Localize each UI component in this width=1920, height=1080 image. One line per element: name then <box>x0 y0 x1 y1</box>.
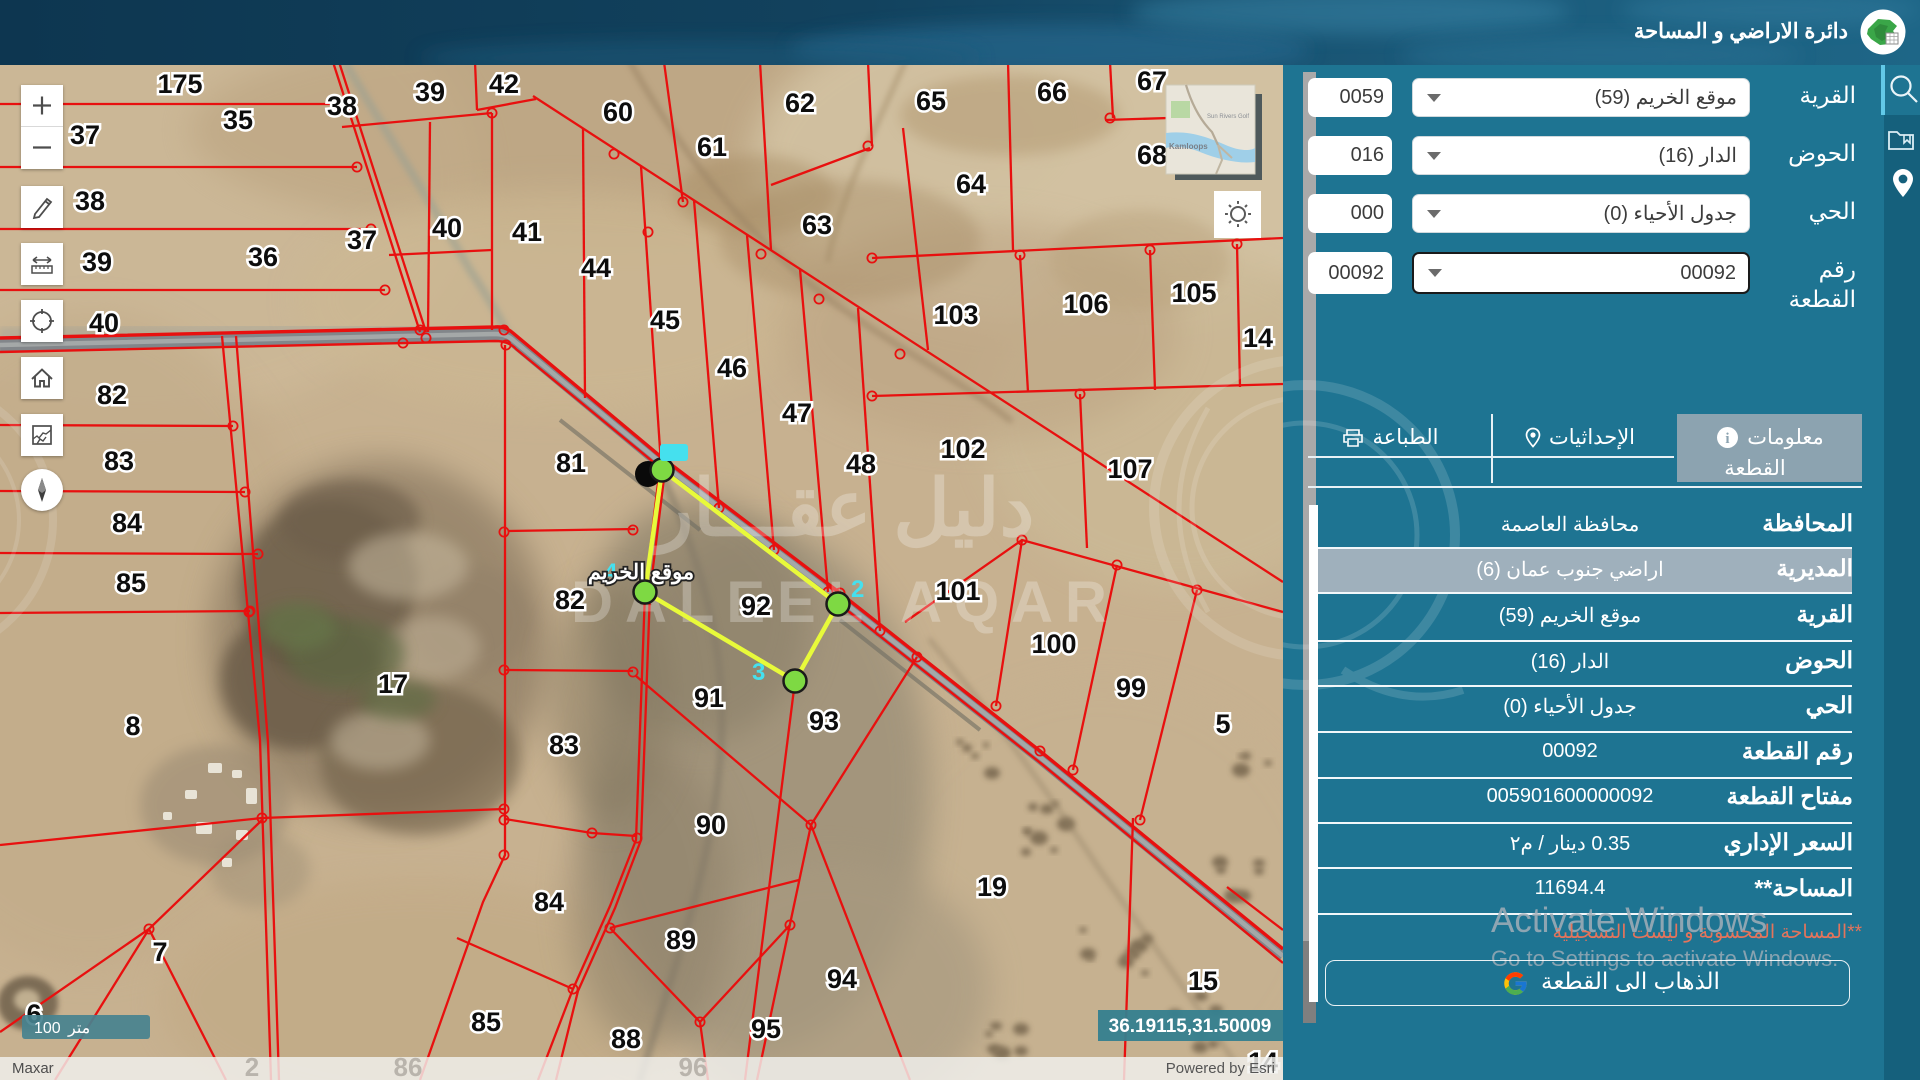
svg-text:175: 175 <box>157 69 202 99</box>
svg-text:100: 100 <box>1031 629 1076 659</box>
svg-text:63: 63 <box>802 210 832 240</box>
svg-text:42: 42 <box>489 69 519 99</box>
svg-text:45: 45 <box>650 305 680 335</box>
svg-text:3: 3 <box>752 659 765 686</box>
svg-text:44: 44 <box>581 253 611 283</box>
svg-text:40: 40 <box>432 213 462 243</box>
svg-text:48: 48 <box>846 449 876 479</box>
svg-text:40: 40 <box>89 308 119 338</box>
svg-text:2: 2 <box>245 1052 259 1080</box>
svg-text:68: 68 <box>1137 140 1167 170</box>
svg-text:46: 46 <box>717 353 747 383</box>
svg-text:94: 94 <box>827 964 857 994</box>
svg-text:100: 100 <box>34 1020 61 1037</box>
svg-text:37: 37 <box>70 120 100 150</box>
svg-text:93: 93 <box>809 706 839 736</box>
svg-text:84: 84 <box>534 887 564 917</box>
svg-text:99: 99 <box>1116 673 1146 703</box>
svg-text:Powered by Esri: Powered by Esri <box>1166 1060 1275 1077</box>
svg-text:67: 67 <box>1137 66 1167 96</box>
svg-text:39: 39 <box>415 77 445 107</box>
svg-text:17: 17 <box>378 669 408 699</box>
svg-text:84: 84 <box>112 508 142 538</box>
svg-text:35: 35 <box>223 105 253 135</box>
svg-text:39: 39 <box>82 247 112 277</box>
svg-text:64: 64 <box>956 169 986 199</box>
svg-text:7: 7 <box>152 937 167 967</box>
svg-text:101: 101 <box>935 576 980 606</box>
svg-text:82: 82 <box>97 380 127 410</box>
svg-text:i: i <box>1726 431 1730 447</box>
svg-text:5: 5 <box>1215 709 1230 739</box>
svg-text:90: 90 <box>696 810 726 840</box>
svg-text:88: 88 <box>611 1024 641 1054</box>
svg-text:موقع الخريم: موقع الخريم <box>588 561 694 585</box>
svg-text:Kamloops: Kamloops <box>1169 142 1208 151</box>
svg-text:81: 81 <box>556 448 586 478</box>
svg-text:36: 36 <box>248 242 278 272</box>
svg-text:102: 102 <box>940 434 985 464</box>
svg-text:60: 60 <box>603 97 633 127</box>
svg-text:15: 15 <box>1188 966 1218 996</box>
svg-text:92: 92 <box>741 591 771 621</box>
svg-text:62: 62 <box>785 88 815 118</box>
svg-text:61: 61 <box>697 132 727 162</box>
svg-text:91: 91 <box>694 683 724 713</box>
svg-text:89: 89 <box>666 925 696 955</box>
svg-text:2: 2 <box>851 576 864 603</box>
svg-text:82: 82 <box>555 585 585 615</box>
svg-text:83: 83 <box>549 730 579 760</box>
svg-text:107: 107 <box>1107 454 1152 484</box>
svg-text:65: 65 <box>916 86 946 116</box>
svg-text:19: 19 <box>977 872 1007 902</box>
svg-text:دليل عقـــار: دليل عقـــار <box>651 464 1035 556</box>
svg-text:95: 95 <box>751 1014 781 1044</box>
svg-text:38: 38 <box>327 91 357 121</box>
svg-text:Maxar: Maxar <box>12 1060 54 1077</box>
svg-text:106: 106 <box>1063 289 1108 319</box>
svg-text:103: 103 <box>933 300 978 330</box>
svg-text:متر: متر <box>67 1020 90 1037</box>
svg-text:86: 86 <box>394 1052 423 1080</box>
svg-text:85: 85 <box>116 568 146 598</box>
svg-text:14: 14 <box>1243 323 1273 353</box>
svg-text:8: 8 <box>125 711 140 741</box>
svg-text:36.19115,31.50009: 36.19115,31.50009 <box>1109 1016 1272 1037</box>
svg-text:83: 83 <box>104 446 134 476</box>
svg-text:96: 96 <box>679 1052 708 1080</box>
svg-text:38: 38 <box>75 186 105 216</box>
svg-text:41: 41 <box>512 217 542 247</box>
svg-text:37: 37 <box>347 225 377 255</box>
svg-text:85: 85 <box>471 1007 501 1037</box>
svg-text:105: 105 <box>1171 278 1216 308</box>
svg-text:66: 66 <box>1037 77 1067 107</box>
svg-text:Sun Rivers Golf: Sun Rivers Golf <box>1207 114 1249 120</box>
svg-text:47: 47 <box>782 398 812 428</box>
